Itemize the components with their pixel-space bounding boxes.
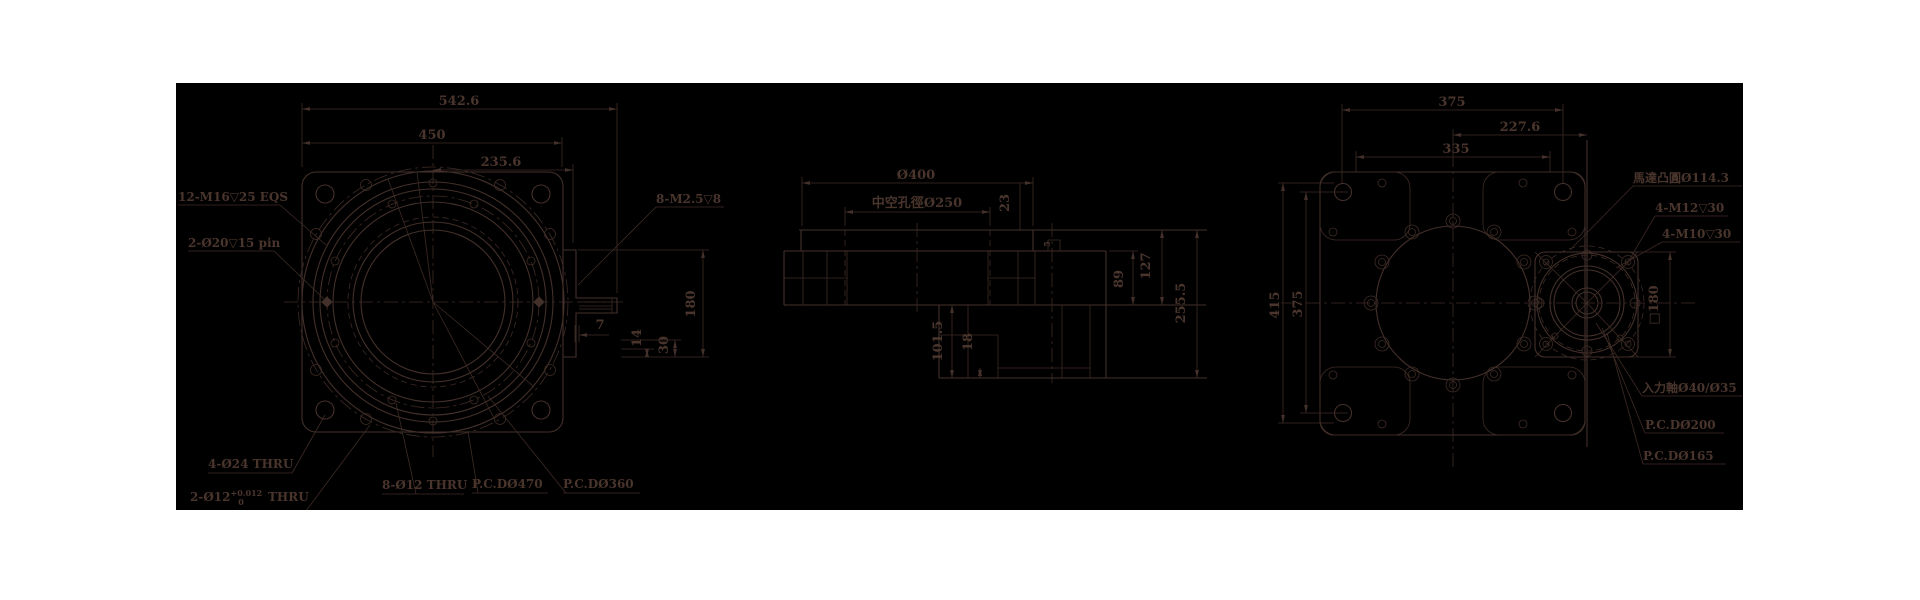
- dim-375-top: 375: [1342, 95, 1563, 183]
- dim-5: 5: [1042, 241, 1052, 247]
- dim-2555: 255.5: [1174, 230, 1197, 378]
- dim-400-text: Ø400: [897, 168, 935, 183]
- dim-450-text: 450: [418, 128, 445, 143]
- label-input-shaft-text: 入力軸Ø40/Ø35: [1642, 380, 1737, 395]
- drawing-canvas: 542.6 450 235.6 180 30 14: [176, 83, 1743, 510]
- label-motor-boss-text: 馬達凸圓Ø114.3: [1633, 170, 1729, 185]
- dim-2276: 227.6: [1453, 120, 1587, 153]
- label-m16-text: 12-M16▽25 EQS: [178, 190, 288, 204]
- dim-1015: 101.5: [931, 305, 952, 378]
- dim-235: 235.6: [433, 155, 573, 243]
- label-o24-text: 4-Ø24 THRU: [208, 457, 294, 471]
- dim-375-top-text: 375: [1438, 95, 1465, 110]
- dim-7: 7: [575, 318, 609, 342]
- dim-542: 542.6: [302, 94, 617, 293]
- dim-450: 450: [302, 128, 562, 167]
- dim-18-text: 18: [961, 333, 976, 351]
- dim-23: 23: [998, 183, 1020, 230]
- label-o24: 4-Ø24 THRU: [208, 415, 325, 473]
- dim-1015-text: 101.5: [931, 321, 946, 362]
- dim-bore: 中空孔徑Ø250: [845, 195, 990, 226]
- label-pcd470-text: P.C.DØ470: [472, 477, 543, 491]
- dim-14-text: 14: [630, 329, 645, 347]
- dim-542-text: 542.6: [439, 94, 480, 109]
- view-rear: 375 227.6 335 415 375: [1268, 95, 1742, 468]
- label-pcd470: P.C.DØ470: [468, 431, 548, 493]
- view-section: Ø400 中空孔徑Ø250 23 5 89 127 255.5: [784, 168, 1207, 383]
- dim-5-text: 5: [1042, 241, 1052, 247]
- label-input-shaft: 入力軸Ø40/Ø35: [1596, 323, 1742, 396]
- drawing-page: 542.6 450 235.6 180 30 14: [0, 0, 1920, 600]
- label-pcd165-text: P.C.DØ165: [1643, 449, 1714, 463]
- dim-18: 18: [961, 333, 980, 378]
- view-front-flange: 542.6 450 235.6 180 30 14: [178, 94, 724, 510]
- dim-2555-text: 255.5: [1174, 283, 1189, 324]
- dim-sq180-text: □180: [1647, 285, 1662, 324]
- label-pin-text: 2-Ø20▽15 pin: [188, 236, 281, 250]
- dim-89: 89: [1109, 251, 1138, 305]
- dim-bore-text: 中空孔徑Ø250: [872, 195, 962, 211]
- dim-14: 14: [621, 329, 654, 357]
- label-pcd165: P.C.DØ165: [1607, 333, 1726, 464]
- label-pcd360-text: P.C.DØ360: [563, 477, 634, 491]
- label-m25-text: 8-M2.5▽8: [656, 192, 721, 206]
- label-pin: 2-Ø20▽15 pin: [188, 236, 324, 299]
- dim-127: 127: [1139, 230, 1162, 305]
- dim-415-text: 415: [1268, 291, 1283, 318]
- label-8o12-text: 8-Ø12 THRU: [382, 478, 468, 492]
- dim-375-left-text: 375: [1291, 290, 1306, 317]
- dim-335: 335: [1356, 142, 1550, 172]
- label-8o12: 8-Ø12 THRU: [382, 403, 468, 494]
- dim-235-text: 235.6: [481, 155, 522, 170]
- dim-89-text: 89: [1112, 270, 1127, 288]
- label-o12-text: 2-Ø12+0.0120 THRU: [190, 488, 309, 507]
- label-m12-text: 4-M12▽30: [1655, 201, 1724, 215]
- label-m10-text: 4-M10▽30: [1662, 227, 1731, 241]
- dim-23-text: 23: [998, 194, 1013, 212]
- dim-335-text: 335: [1442, 142, 1469, 157]
- label-pcd200-text: P.C.DØ200: [1645, 418, 1716, 432]
- dim-7-text: 7: [595, 318, 604, 333]
- dim-127-text: 127: [1139, 252, 1154, 279]
- label-m25: 8-M2.5▽8: [578, 192, 724, 285]
- cad-drawing: 542.6 450 235.6 180 30 14: [176, 83, 1743, 510]
- dim-2276-text: 227.6: [1500, 120, 1541, 135]
- dim-30-text: 30: [657, 336, 672, 354]
- dim-180-text: 180: [684, 290, 699, 317]
